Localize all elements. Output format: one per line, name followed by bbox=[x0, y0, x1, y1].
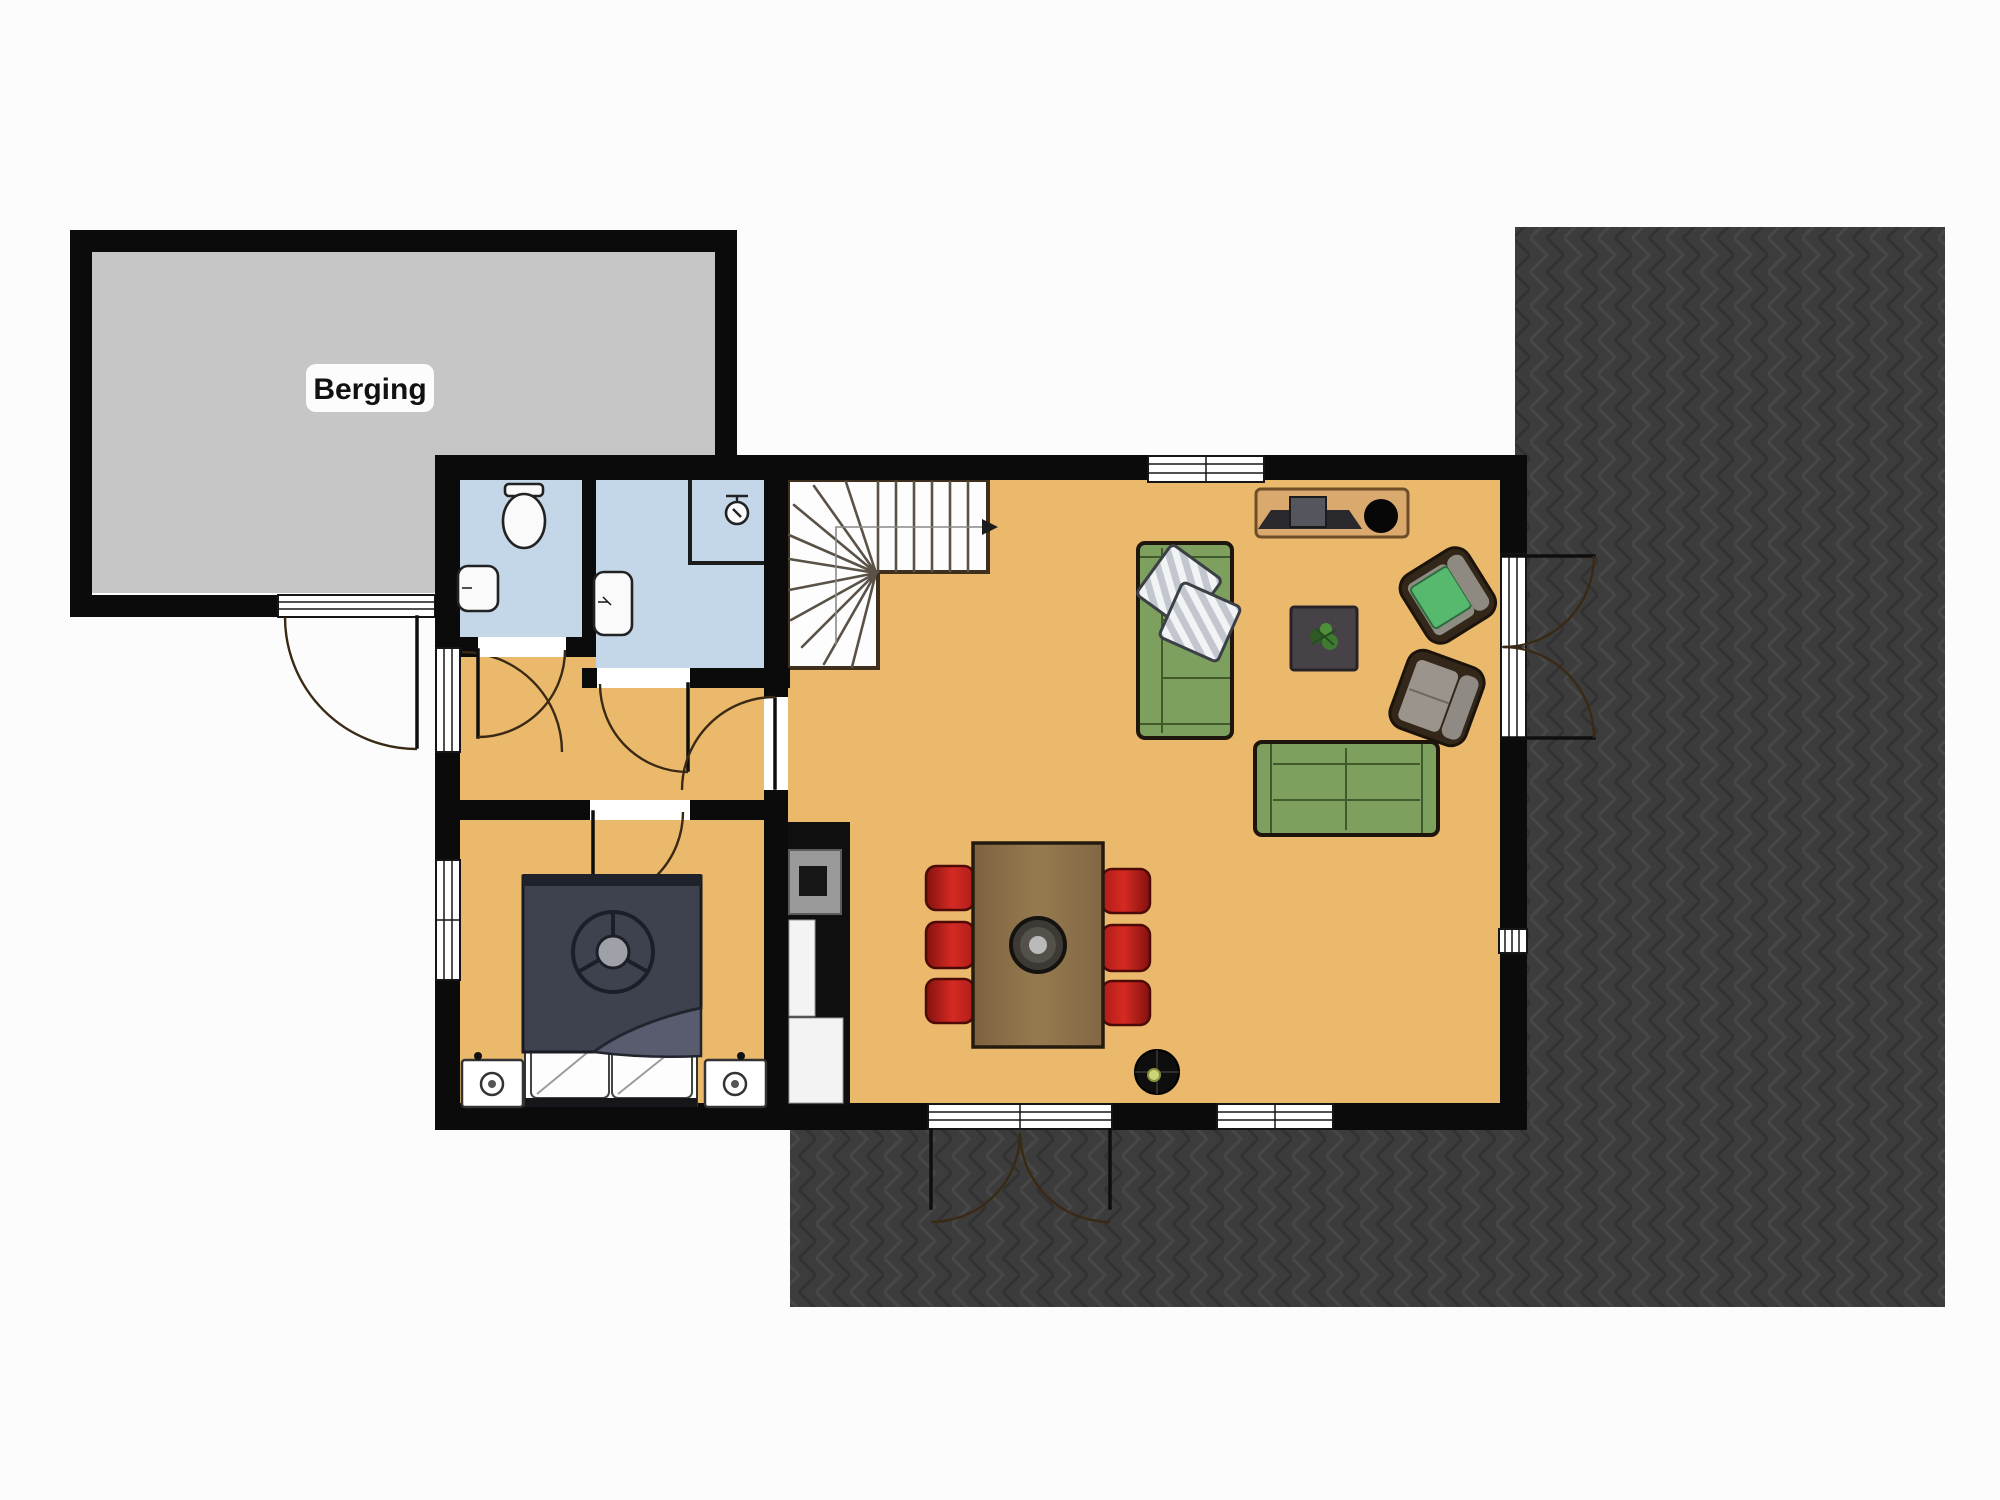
oven-door-icon bbox=[799, 866, 827, 896]
tv-sideboard bbox=[1256, 489, 1408, 537]
toilet-bowl-icon bbox=[503, 494, 545, 548]
kitchen-counter-lower bbox=[789, 1018, 843, 1103]
nightstand-left bbox=[462, 1052, 523, 1107]
toilet-door-opening bbox=[478, 637, 566, 657]
dining-chair-left-2 bbox=[926, 922, 974, 968]
dining-set bbox=[926, 843, 1150, 1047]
bathroom-sink-icon bbox=[594, 572, 632, 635]
wall-bathroom-south-left bbox=[582, 668, 597, 688]
wall-lamp-dot-right bbox=[737, 1052, 745, 1060]
dining-chair-right-3 bbox=[1102, 981, 1150, 1025]
storage-wall-top bbox=[70, 230, 737, 252]
nightstand-right bbox=[705, 1052, 766, 1107]
terrace-right-area bbox=[1515, 227, 1945, 1307]
dining-chair-right-1 bbox=[1102, 869, 1150, 913]
storage-label: Berging bbox=[313, 373, 426, 406]
sofa-vertical bbox=[1136, 543, 1242, 738]
wall-hall-living-upper bbox=[764, 455, 788, 697]
storage-door-glazing bbox=[278, 595, 435, 617]
house-wall-north bbox=[435, 455, 1527, 480]
robot-vacuum-button bbox=[1148, 1069, 1160, 1081]
terrace-bottom-area bbox=[790, 1130, 1515, 1307]
front-door bbox=[436, 648, 460, 752]
wall-bedroom-living bbox=[764, 790, 788, 1103]
floorplan-drawing: Berging bbox=[0, 0, 2000, 1500]
bedroom-door-opening bbox=[590, 800, 690, 820]
house-wall-west bbox=[435, 455, 460, 1130]
bathroom-door-opening bbox=[597, 668, 690, 688]
storage-wall-left bbox=[70, 230, 92, 617]
nightstand-right-knob bbox=[731, 1080, 739, 1088]
floorplan-canvas: Berging bbox=[0, 0, 2000, 1500]
storage-door-swing-arc bbox=[285, 617, 417, 749]
coffee-table bbox=[1291, 607, 1357, 670]
dining-chair-right-2 bbox=[1102, 925, 1150, 971]
wall-toilet-south-right bbox=[566, 637, 596, 657]
wall-lamp-dot-left bbox=[474, 1052, 482, 1060]
east-wall-vent bbox=[1499, 929, 1527, 953]
bed-foot-bar bbox=[523, 874, 701, 886]
dining-chair-left-3 bbox=[926, 979, 974, 1023]
robot-vacuum bbox=[1135, 1050, 1179, 1094]
table-bowl-center bbox=[1029, 936, 1047, 954]
bed bbox=[523, 874, 701, 1107]
wall-hall-bedroom-right bbox=[690, 800, 788, 820]
kitchen-counter-upper bbox=[789, 920, 815, 1016]
nightstand-left-knob bbox=[488, 1080, 496, 1088]
bed-head-bar bbox=[525, 1098, 697, 1107]
dining-chair-left-1 bbox=[926, 866, 974, 910]
kitchen-unit bbox=[788, 822, 850, 1105]
tv-screen-icon bbox=[1290, 497, 1326, 527]
sofa-horizontal bbox=[1255, 742, 1438, 835]
speaker-icon bbox=[1364, 499, 1398, 533]
